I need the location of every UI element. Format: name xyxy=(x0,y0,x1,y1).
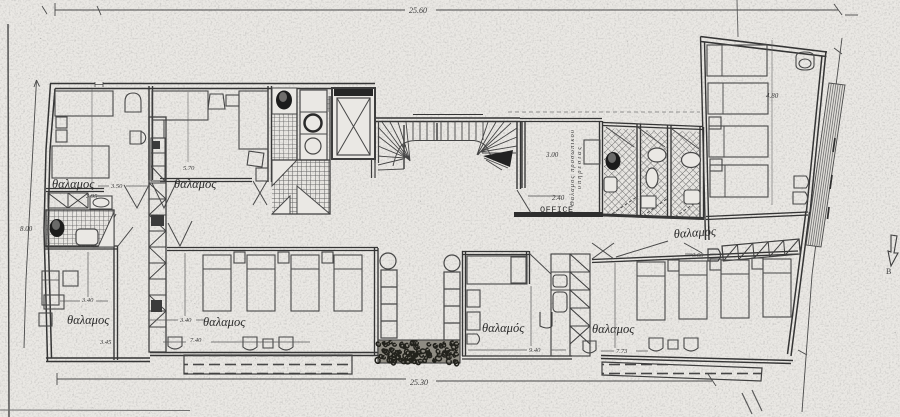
svg-text:θαλαμος: θαλαμος xyxy=(52,177,95,191)
svg-text:7.40: 7.40 xyxy=(190,337,202,344)
svg-text:7.73: 7.73 xyxy=(616,348,628,355)
svg-text:4.80: 4.80 xyxy=(766,92,779,100)
svg-text:9.40: 9.40 xyxy=(529,347,541,354)
svg-text:25.60: 25.60 xyxy=(409,6,427,15)
svg-text:θαλαμος: θαλαμος xyxy=(174,177,217,191)
svg-text:3.50: 3.50 xyxy=(110,183,123,190)
svg-text:3.40: 3.40 xyxy=(179,317,192,324)
svg-text:3.40: 3.40 xyxy=(81,297,94,304)
svg-text:5.70: 5.70 xyxy=(183,165,195,172)
svg-text:25.30: 25.30 xyxy=(410,378,428,387)
svg-text:3.00: 3.00 xyxy=(545,151,559,159)
svg-text:3.45: 3.45 xyxy=(99,339,112,346)
svg-text:θαλαμος: θαλαμος xyxy=(67,313,110,327)
svg-text:B: B xyxy=(886,267,891,276)
svg-text:8.00: 8.00 xyxy=(20,225,33,233)
svg-text:υπηρεσιας: υπηρεσιας xyxy=(576,147,583,189)
svg-text:θαλαμός: θαλαμός xyxy=(482,321,525,335)
svg-text:0.60: 0.60 xyxy=(692,252,704,259)
svg-text:θαλαμος: θαλαμος xyxy=(203,315,246,329)
svg-text:3.95: 3.95 xyxy=(85,193,98,200)
svg-text:θαλαμος: θαλαμος xyxy=(592,322,635,336)
svg-text:Θαλαμος προσωπικου: Θαλαμος προσωπικου xyxy=(569,130,576,206)
svg-text:2.40: 2.40 xyxy=(552,194,565,202)
